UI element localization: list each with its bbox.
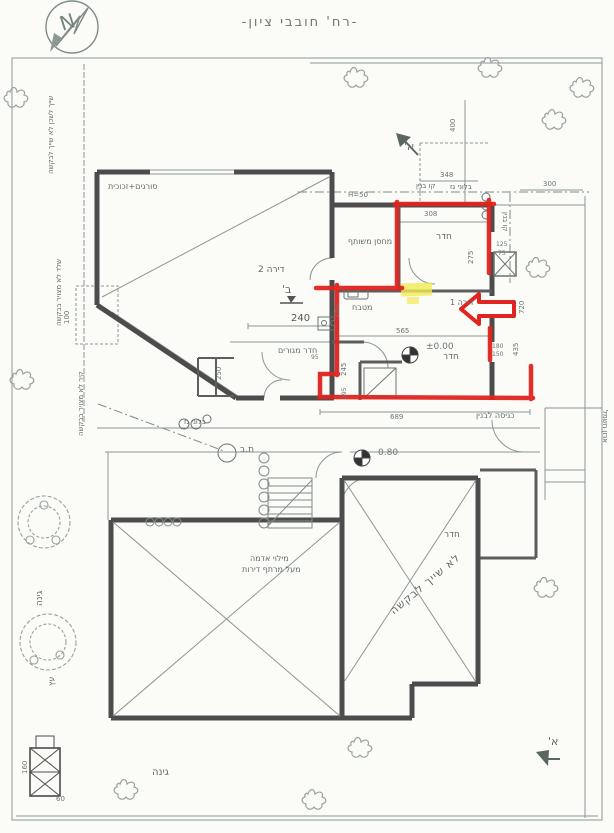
dim-400: 400 [450,119,457,132]
manhole-label: ת.ב [240,446,254,455]
manhole-icon [218,444,236,462]
dim-300: 300 [543,181,556,188]
level-080-label: 0.80 [378,449,398,458]
dim-245: 245 [341,363,348,376]
room-label-lower: חדר [444,531,460,540]
section-a-bottom-label: א' [548,736,558,748]
dim-308: 308 [424,211,437,218]
utility-circles [146,453,269,528]
yellow-highlight-mark [401,282,432,304]
plan-linework [0,0,614,833]
dim-250: 250 [216,367,223,380]
room-label-mid: חדר [443,353,459,362]
dim-75: 75 [498,251,506,257]
room-label-top: חדר [436,233,452,242]
tree-label: עץ [48,677,56,686]
dim-348: 348 [440,172,453,179]
apartment2-label: דירה 2 [258,266,284,275]
gas-label-top: בלוני גז [450,184,472,191]
shaft-symbol [30,736,60,796]
earth-fill-note-1: מילוי אדמה [250,555,289,563]
dim-240: 240 [291,314,310,325]
earth-fill-note-2: מעל מרתף דירות [242,566,301,574]
section-a-top-label: א' [404,141,414,153]
dim-95: 95 [311,355,319,361]
garden-label-left: גינה [36,591,45,606]
level-zero-label: ±0.00 [426,343,454,352]
upper-building-partitions [198,205,536,558]
dim-100: 100 [64,311,71,324]
fixtures [318,252,516,398]
floor-plan-sheet: -רח' חובבי ציון- N סורגים+זכוכית שייך לש… [0,0,614,833]
street-name: -רח' חובבי ציון- [170,16,430,30]
building-line-label-h: קו בנין [416,183,435,190]
level-symbol-080 [354,450,370,466]
dim-565: 565 [396,328,409,335]
section-b-marker-icon [280,296,303,303]
apartment1-label: דירה 1 [450,299,474,307]
room-label-storage: מחסן משותף [346,238,394,246]
dim-160: 160 [22,761,29,774]
dim-180: 180 [492,344,503,350]
note-left-low: קיר לא מצויר בבקשה [78,371,85,436]
stairs [268,478,312,528]
section-b-label: ב' [282,284,291,296]
dim-295: 295 [342,388,348,399]
level-symbol-zero [402,347,418,363]
dim-150-right: 150 [492,352,503,358]
dim-720: 720 [519,301,526,314]
room-label-kitchen: מטבח [352,304,372,312]
building-entrance-label: כניסה לבנין [476,412,515,420]
note-left-top: שייך לשכן לא שייך לבקשה [48,96,55,174]
dim-125: 125 [496,242,507,248]
garden-label-main: גינה [152,768,169,779]
lower-building-diagonals [113,480,476,716]
cabinet-label: ארון חשמל [601,410,608,443]
parapet-height-label: H=50 [348,192,368,199]
dim-435: 435 [513,343,520,356]
bars-glass-note: סורגים+זכוכית [108,183,157,191]
dim-689: 689 [390,414,403,421]
gas-label-left: בלוני גז [184,419,206,426]
building-line-label-v: קו בנין [501,212,508,231]
door-arcs [262,258,524,505]
dim-150-kitchen: 150 [334,305,341,318]
section-arrow-bottom-icon [536,750,560,766]
dim-60: 60 [56,796,65,803]
dim-275: 275 [468,251,475,264]
tree-icons [18,496,76,670]
